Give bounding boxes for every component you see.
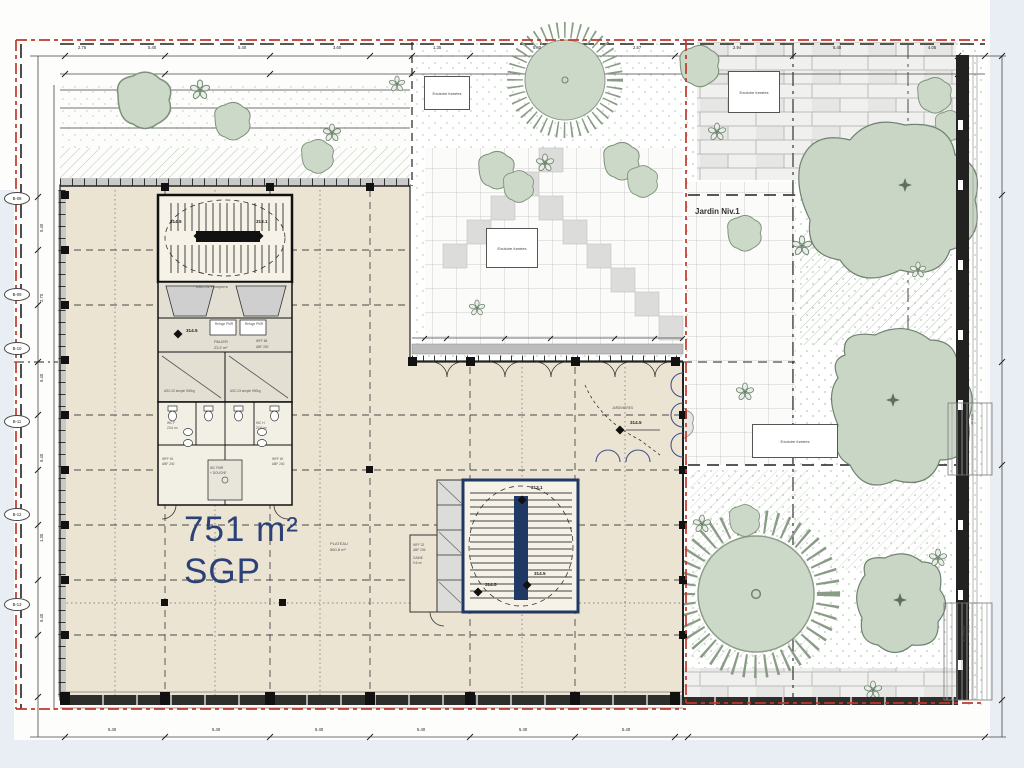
grid-bubble: B-08 <box>4 192 30 205</box>
dim-left: 5.40 <box>40 614 45 622</box>
gaine-area: 9.6 m² <box>413 562 422 566</box>
palier-label: PALIER <box>214 340 228 345</box>
stair2-level-bottom: 314.5 <box>534 571 546 576</box>
dim-bottom: 5.40 <box>315 728 323 733</box>
dim-top: 1.35 <box>433 46 441 51</box>
main-area-name: SGP <box>184 552 261 592</box>
stair1-level-left: 314.5 <box>170 219 182 224</box>
dim-bottom: 5.40 <box>622 728 630 733</box>
abf240-label: ABF 240 <box>272 463 284 467</box>
wc-douche-label: + DOUCHE <box>210 472 227 476</box>
dim-top: 5.40 <box>833 46 841 51</box>
elevator3-label: ASC.03 simple 900kg <box>230 390 261 394</box>
dim-bottom: 5.40 <box>212 728 220 733</box>
elevator1-label: ASC.01 Pompiers <box>196 285 228 290</box>
grid-bubble: B-12 <box>4 508 30 521</box>
smoke-vent-box: Exutoire fumées <box>424 76 470 110</box>
lobby-level: 314.5 <box>186 328 198 333</box>
palier-area: 23.2 m² <box>214 346 228 351</box>
grid-bubble: B-13 <box>4 598 30 611</box>
dim-bottom: 5.40 <box>417 728 425 733</box>
dim-bottom: 5.40 <box>519 728 527 733</box>
jardinieres-label: JARDINIÈRES <box>612 407 633 411</box>
terrace-label-1: TERRASSE <box>964 414 968 431</box>
stair1-level-right: 313.1 <box>256 219 268 224</box>
smoke-vent-box: Exutoire fumées <box>486 228 538 268</box>
grid-bubble: B-09 <box>4 288 30 301</box>
wc-h-area: 23.6 m² <box>256 427 267 431</box>
dim-left: 2.70 <box>40 294 45 302</box>
dim-left: 5.40 <box>40 454 45 462</box>
garden-spot-level: 314.5 <box>630 420 642 425</box>
dim-left: 5.40 <box>40 224 45 232</box>
floor-plan-drawing <box>0 0 1024 768</box>
main-area-value: 751 m² <box>184 510 299 550</box>
grid-bubble: B-11 <box>4 415 30 428</box>
wff68-label: WFF 68 <box>256 340 267 344</box>
terrace-label-2: TERRASSE <box>960 625 964 642</box>
stair2-level-side: 314.5 <box>485 582 497 587</box>
garden-name-label: Jardin Niv.1 <box>695 207 740 216</box>
dim-top: 5.40 <box>238 46 246 51</box>
terrace-area-2: 30.8 m² <box>965 625 969 636</box>
dim-left: 5.40 <box>40 374 45 382</box>
abf240-label: ABF 240 <box>162 463 174 467</box>
stair2-level-top: 313.1 <box>531 485 543 490</box>
abf250-label: ABF 250 <box>256 346 268 350</box>
dim-bottom: 5.40 <box>108 728 116 733</box>
dim-top: 2.94 <box>733 46 741 51</box>
dim-top: 4.05 <box>928 46 936 51</box>
dim-top: 5.40 <box>148 46 156 51</box>
plateau-label: PLATEAU <box>330 542 348 547</box>
floor-plan-sheet: 751 m² SGP PLATEAU 560.8 m² Jardin Niv.1… <box>0 0 1024 768</box>
elevator2-label: ASC.02 simple 900kg <box>164 390 195 394</box>
wc-f-area: 23.6 m² <box>167 427 178 431</box>
plateau-area: 560.8 m² <box>330 548 346 553</box>
dim-top: 5.40 <box>533 46 541 51</box>
refuge-label: Refuge PMR <box>212 323 236 327</box>
smoke-vent-box: Exutoire fumées <box>728 71 780 113</box>
abf206-label: ABF 206 <box>413 549 425 553</box>
dim-top: 2.75 <box>78 46 86 51</box>
terrace-area-1: 30.8 m² <box>969 414 973 425</box>
smoke-vent-box: Exutoire fumées <box>752 424 838 458</box>
refuge-label: Refuge PMR <box>242 323 266 327</box>
grid-bubble: B-10 <box>4 342 30 355</box>
dim-left: 1.35 <box>40 534 45 542</box>
dim-top: 3.60 <box>333 46 341 51</box>
dim-top: 2.57 <box>633 46 641 51</box>
